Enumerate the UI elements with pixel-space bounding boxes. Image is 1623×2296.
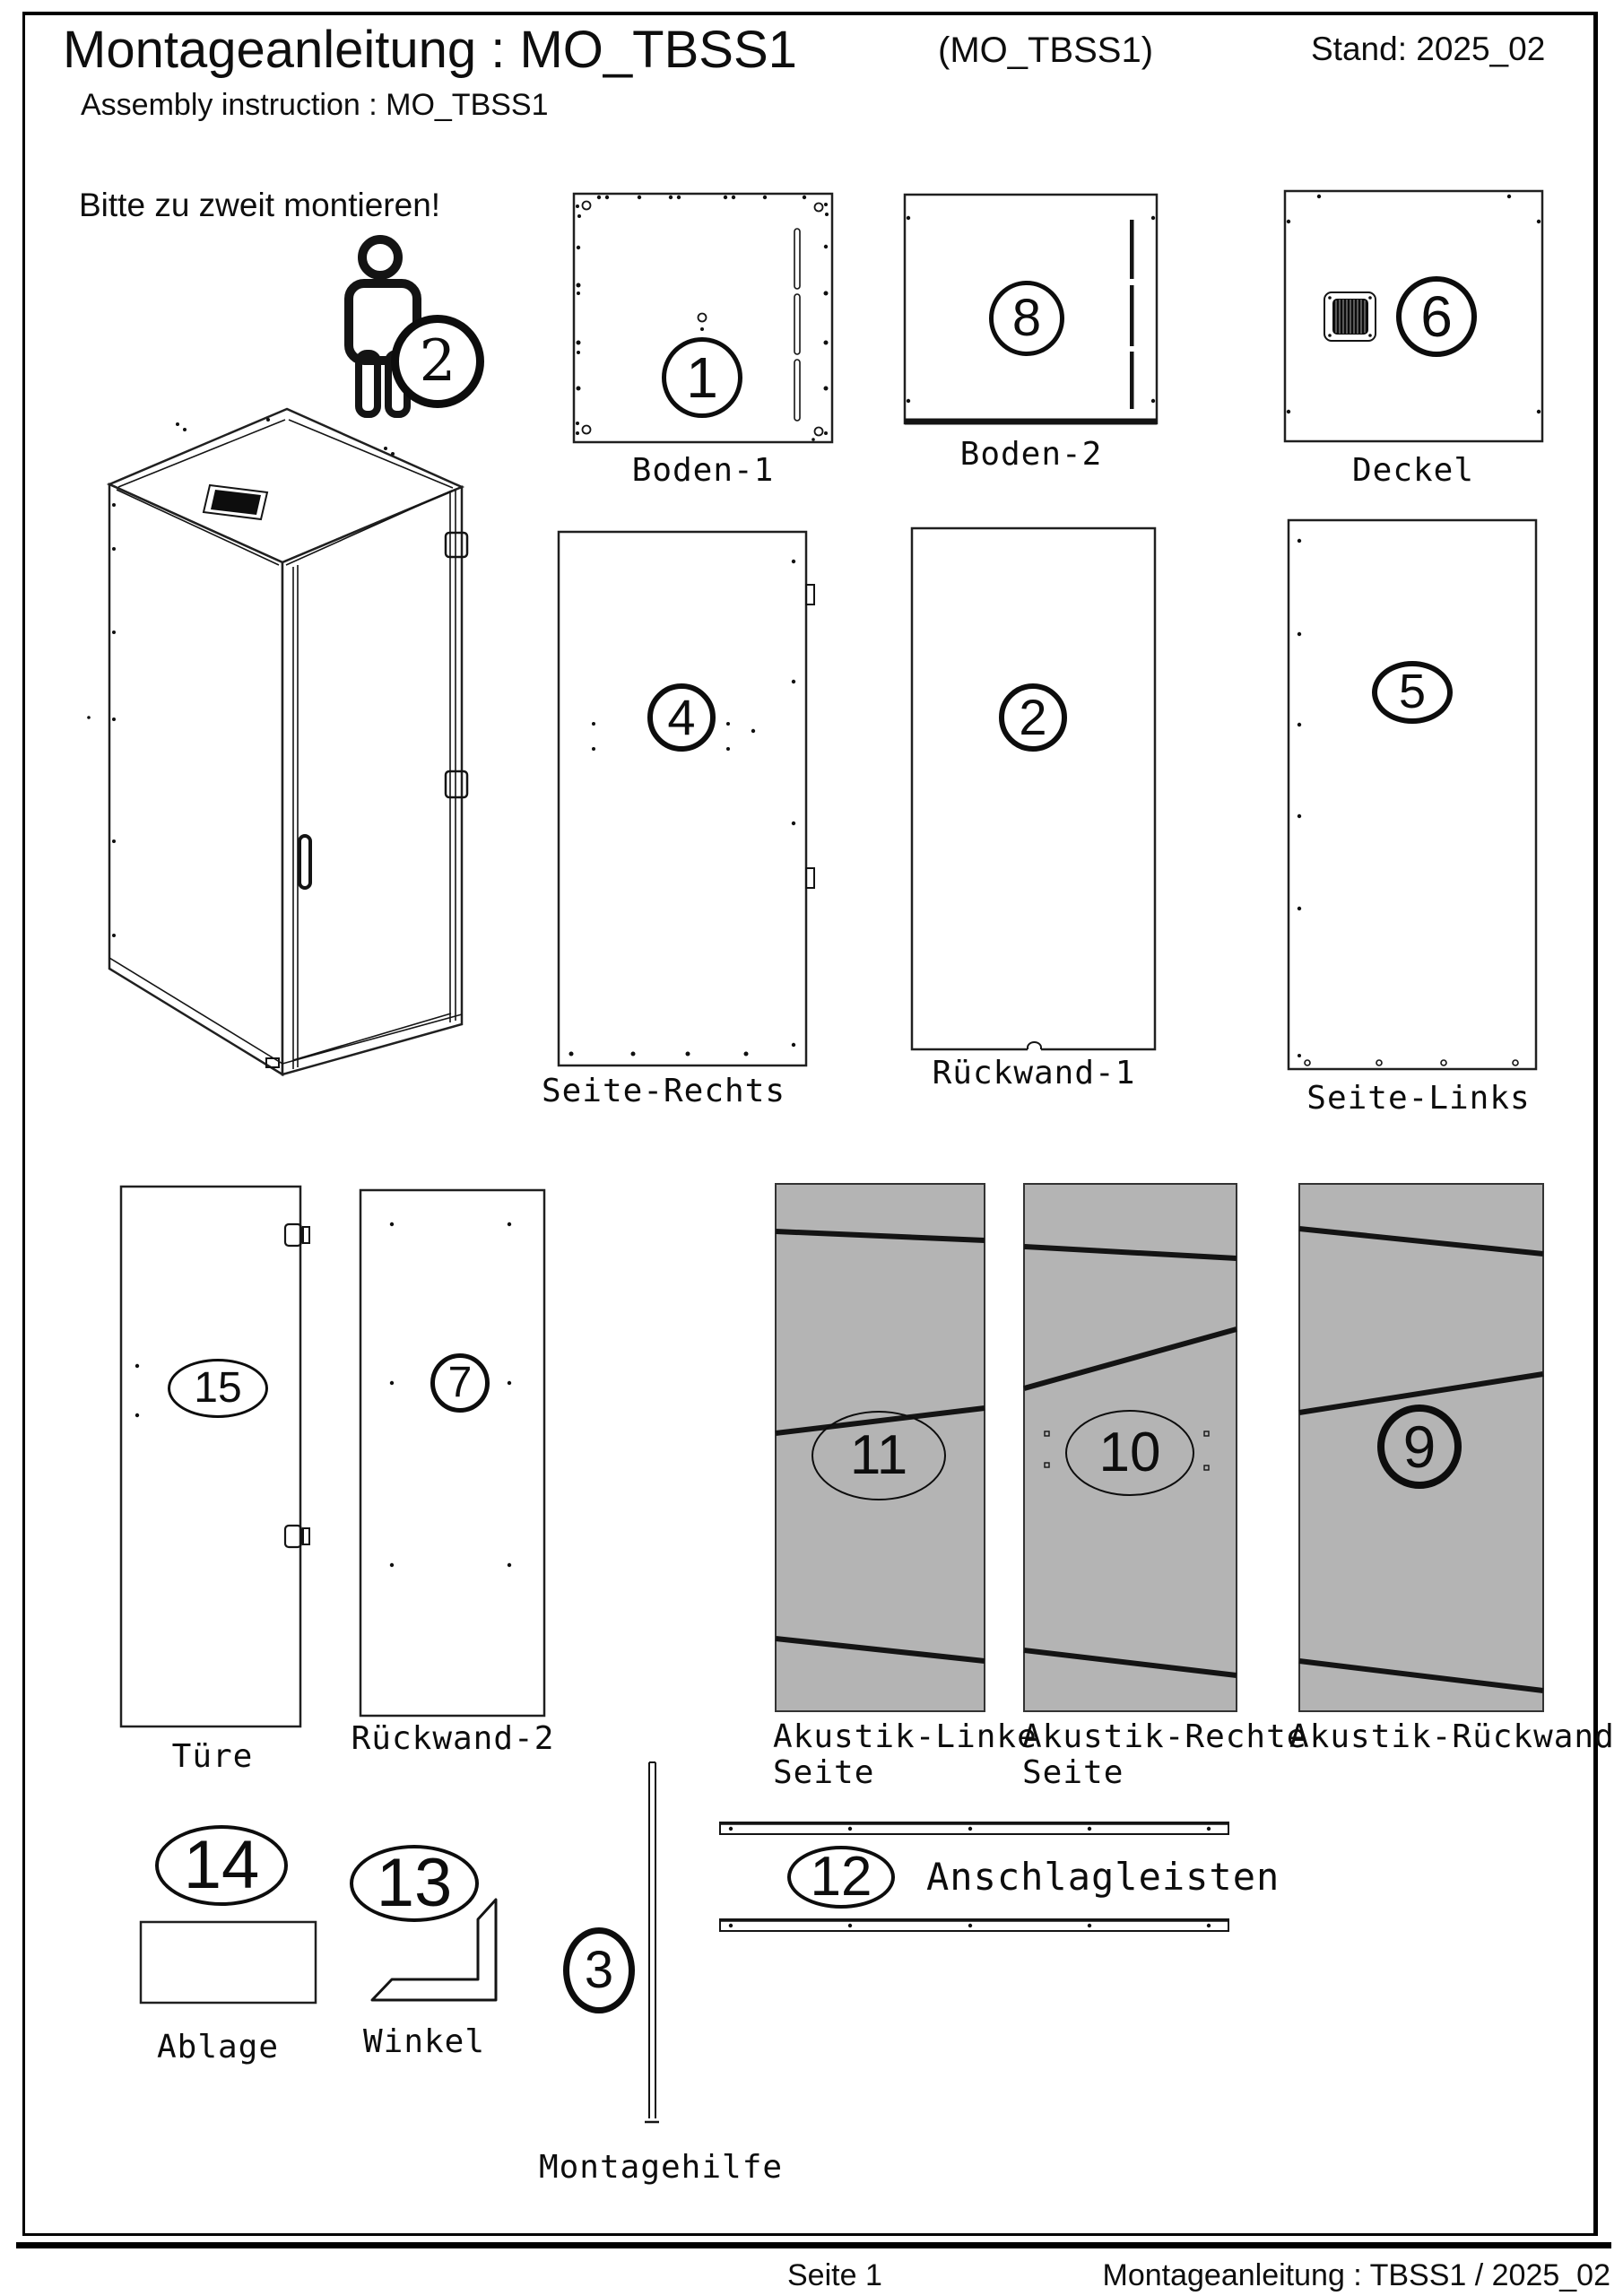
part-callout-akustik-rechte: 10 (1065, 1410, 1194, 1496)
part-callout-boden2: 8 (989, 281, 1064, 356)
part-label-akustik-rechte-1: Akustik-Rechte (1022, 1718, 1306, 1755)
part-callout-anschlagleisten: 12 (787, 1846, 895, 1909)
part-label-seite-rechts: Seite-Rechts (542, 1073, 785, 1109)
part-label-boden1: Boden-1 (632, 452, 775, 489)
part-callout-winkel: 13 (350, 1845, 479, 1922)
part-label-winkel: Winkel (363, 2023, 485, 2060)
two-person-badge: 2 (391, 315, 484, 408)
footer-doc-reference: Montageanleitung : TBSS1 / 2025_02 (1103, 2258, 1610, 2293)
part-callout-rueckwand1: 2 (999, 683, 1067, 752)
cabinet-isometric-drawing (87, 409, 467, 1074)
part-callout-montagehilfe: 3 (563, 1927, 635, 2013)
part-montagehilfe-drawing (645, 1762, 659, 2122)
part-callout-akustik-rueckwand: 9 (1377, 1405, 1462, 1489)
part-label-anschlagleisten: Anschlagleisten (926, 1855, 1280, 1899)
part-callout-boden1: 1 (662, 337, 742, 418)
part-callout-ablage: 14 (155, 1825, 288, 1906)
part-label-rueckwand2: Rückwand-2 (352, 1720, 555, 1757)
part-callout-tuere: 15 (168, 1359, 268, 1418)
drawing-canvas (0, 0, 1623, 2296)
part-callout-deckel: 6 (1396, 276, 1477, 357)
part-rueckwand2-drawing (360, 1190, 544, 1716)
part-callout-rueckwand2: 7 (430, 1353, 490, 1413)
part-label-boden2: Boden-2 (960, 436, 1103, 473)
two-person-badge-count: 2 (420, 335, 456, 389)
part-seite-rechts-drawing (559, 532, 814, 1065)
part-label-deckel: Deckel (1352, 452, 1474, 489)
part-label-akustik-linke-1: Akustik-Linke (773, 1718, 1037, 1755)
part-label-rueckwand1: Rückwand-1 (933, 1055, 1136, 1091)
part-tuere-drawing (121, 1187, 309, 1726)
part-label-ablage: Ablage (157, 2029, 279, 2066)
footer-page-number: Seite 1 (787, 2258, 882, 2293)
part-callout-seite-rechts: 4 (647, 683, 716, 752)
footer-rule (16, 2242, 1611, 2248)
part-label-montagehilfe: Montagehilfe (539, 2149, 783, 2186)
part-label-akustik-rueckwand: Akustik-Rückwand (1289, 1718, 1615, 1755)
assembly-instruction-page: Montageanleitung : MO_TBSS1 (MO_TBSS1) S… (0, 0, 1623, 2296)
part-ablage-drawing (141, 1922, 316, 2003)
part-rueckwand1-drawing (912, 528, 1155, 1052)
part-callout-akustik-linke: 11 (811, 1411, 946, 1500)
part-label-akustik-rechte-2: Seite (1022, 1754, 1124, 1791)
part-label-tuere: Türe (172, 1738, 254, 1775)
part-seite-links-drawing (1289, 520, 1536, 1069)
part-label-seite-links: Seite-Links (1306, 1080, 1530, 1117)
part-label-akustik-linke-2: Seite (773, 1754, 874, 1791)
part-callout-seite-links: 5 (1372, 661, 1453, 724)
